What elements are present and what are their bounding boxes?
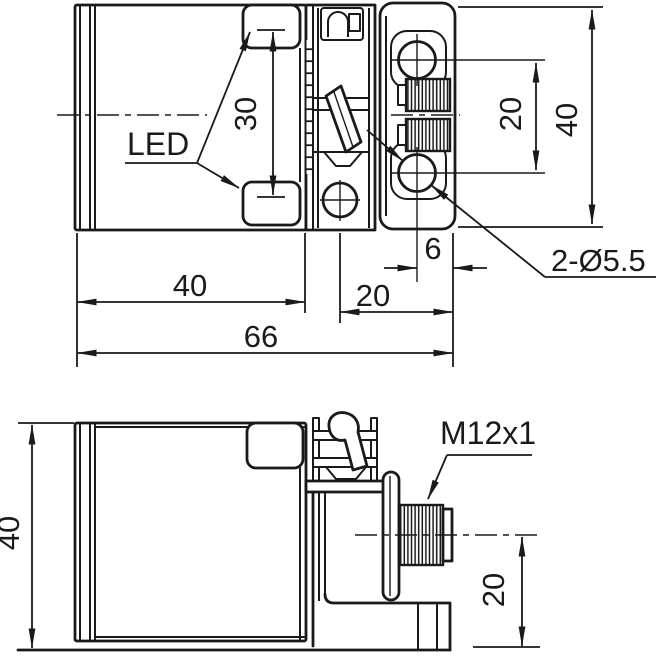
dimension-40-height: 40 xyxy=(0,423,74,648)
dimension-text: 20 xyxy=(493,97,528,131)
thread-label: M12x1 xyxy=(440,415,536,451)
dimension-text: 30 xyxy=(228,97,263,131)
connector-thread-bottom xyxy=(406,119,450,151)
clamp-base-bar xyxy=(306,481,390,492)
dimension-text: 40 xyxy=(0,516,26,550)
dimension-text: 40 xyxy=(549,103,584,137)
thread-shoulder xyxy=(398,85,406,105)
sensor-dimension-drawing: LED 30 20 40 6 xyxy=(0,0,658,658)
sensor-body-side xyxy=(75,423,306,641)
dimension-text: 66 xyxy=(244,319,278,354)
connector-flange xyxy=(383,472,399,600)
connector-thread-top xyxy=(406,79,450,111)
led-label: LED xyxy=(127,126,189,162)
dimension-text: 20 xyxy=(356,278,390,313)
led-window-bottom xyxy=(243,182,300,225)
hole-callout-text: 2-Ø5.5 xyxy=(551,243,646,278)
dimension-6: 6 xyxy=(384,231,487,367)
dimension-text: 20 xyxy=(476,573,511,607)
dimension-40-bracket: 40 xyxy=(458,7,603,227)
bracket-foot xyxy=(325,594,450,650)
led-window-top xyxy=(243,5,300,48)
leader-arrow xyxy=(428,455,447,499)
clamp-assembly-side xyxy=(306,413,390,492)
top-view: LED 30 20 40 6 xyxy=(57,3,656,367)
leader-arrow xyxy=(431,185,545,277)
technical-drawing-page: LED 30 20 40 6 xyxy=(0,0,658,658)
side-view: M12x1 20 40 xyxy=(0,413,540,650)
mounting-bracket-top xyxy=(380,3,545,282)
dimension-20-holes: 20 xyxy=(493,63,536,170)
clamp-assembly-top xyxy=(306,5,375,230)
m12-connector xyxy=(355,472,540,600)
dimension-text: 40 xyxy=(173,268,207,303)
dimension-20-connector: 20 xyxy=(473,537,540,647)
led-window-side xyxy=(247,423,303,468)
dimension-text: 6 xyxy=(424,231,441,266)
dimension-66: 66 xyxy=(77,319,453,354)
thread-callout: M12x1 xyxy=(428,415,536,499)
thread-shoulder xyxy=(398,125,406,145)
